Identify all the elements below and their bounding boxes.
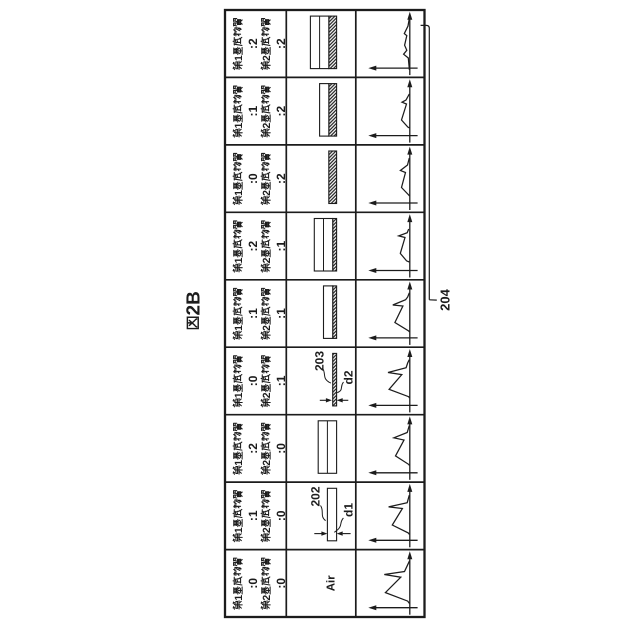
svg-text::2: :2 (246, 240, 260, 251)
svg-text::0: :0 (246, 375, 260, 386)
svg-text:1: 1 (233, 392, 245, 398)
svg-text::0: :0 (274, 510, 288, 521)
svg-text:2: 2 (261, 257, 273, 263)
svg-text:2: 2 (261, 55, 273, 61)
svg-text:1: 1 (233, 527, 245, 533)
svg-text:2: 2 (261, 460, 273, 466)
svg-text:2B: 2B (184, 291, 205, 315)
svg-text::2: :2 (274, 173, 288, 184)
svg-text:d1: d1 (342, 503, 356, 517)
svg-text:1: 1 (233, 460, 245, 466)
svg-text:2: 2 (261, 392, 273, 398)
svg-text::2: :2 (246, 443, 260, 454)
svg-text::1: :1 (246, 106, 260, 117)
svg-text:1: 1 (233, 257, 245, 263)
svg-text::0: :0 (274, 443, 288, 454)
svg-text:2: 2 (261, 595, 273, 601)
svg-text:Air: Air (326, 575, 338, 592)
svg-text:1: 1 (233, 55, 245, 61)
svg-text:2: 2 (261, 190, 273, 196)
svg-text::0: :0 (246, 173, 260, 184)
svg-text:2: 2 (261, 123, 273, 129)
svg-text::0: :0 (246, 578, 260, 589)
svg-text::2: :2 (274, 106, 288, 117)
svg-text:203: 203 (313, 351, 327, 371)
svg-text:1: 1 (233, 123, 245, 129)
svg-text:1: 1 (233, 190, 245, 196)
svg-text::2: :2 (246, 38, 260, 49)
svg-text::1: :1 (274, 308, 288, 319)
svg-text::0: :0 (274, 578, 288, 589)
svg-text:202: 202 (309, 486, 323, 506)
svg-text:1: 1 (233, 325, 245, 331)
svg-text::1: :1 (274, 240, 288, 251)
svg-text::1: :1 (246, 510, 260, 521)
svg-text:1: 1 (233, 595, 245, 601)
svg-text:2: 2 (261, 325, 273, 331)
svg-text:204: 204 (438, 288, 453, 310)
svg-text:2: 2 (261, 527, 273, 533)
svg-text::1: :1 (246, 308, 260, 319)
svg-text::1: :1 (274, 375, 288, 386)
svg-text::2: :2 (274, 38, 288, 49)
